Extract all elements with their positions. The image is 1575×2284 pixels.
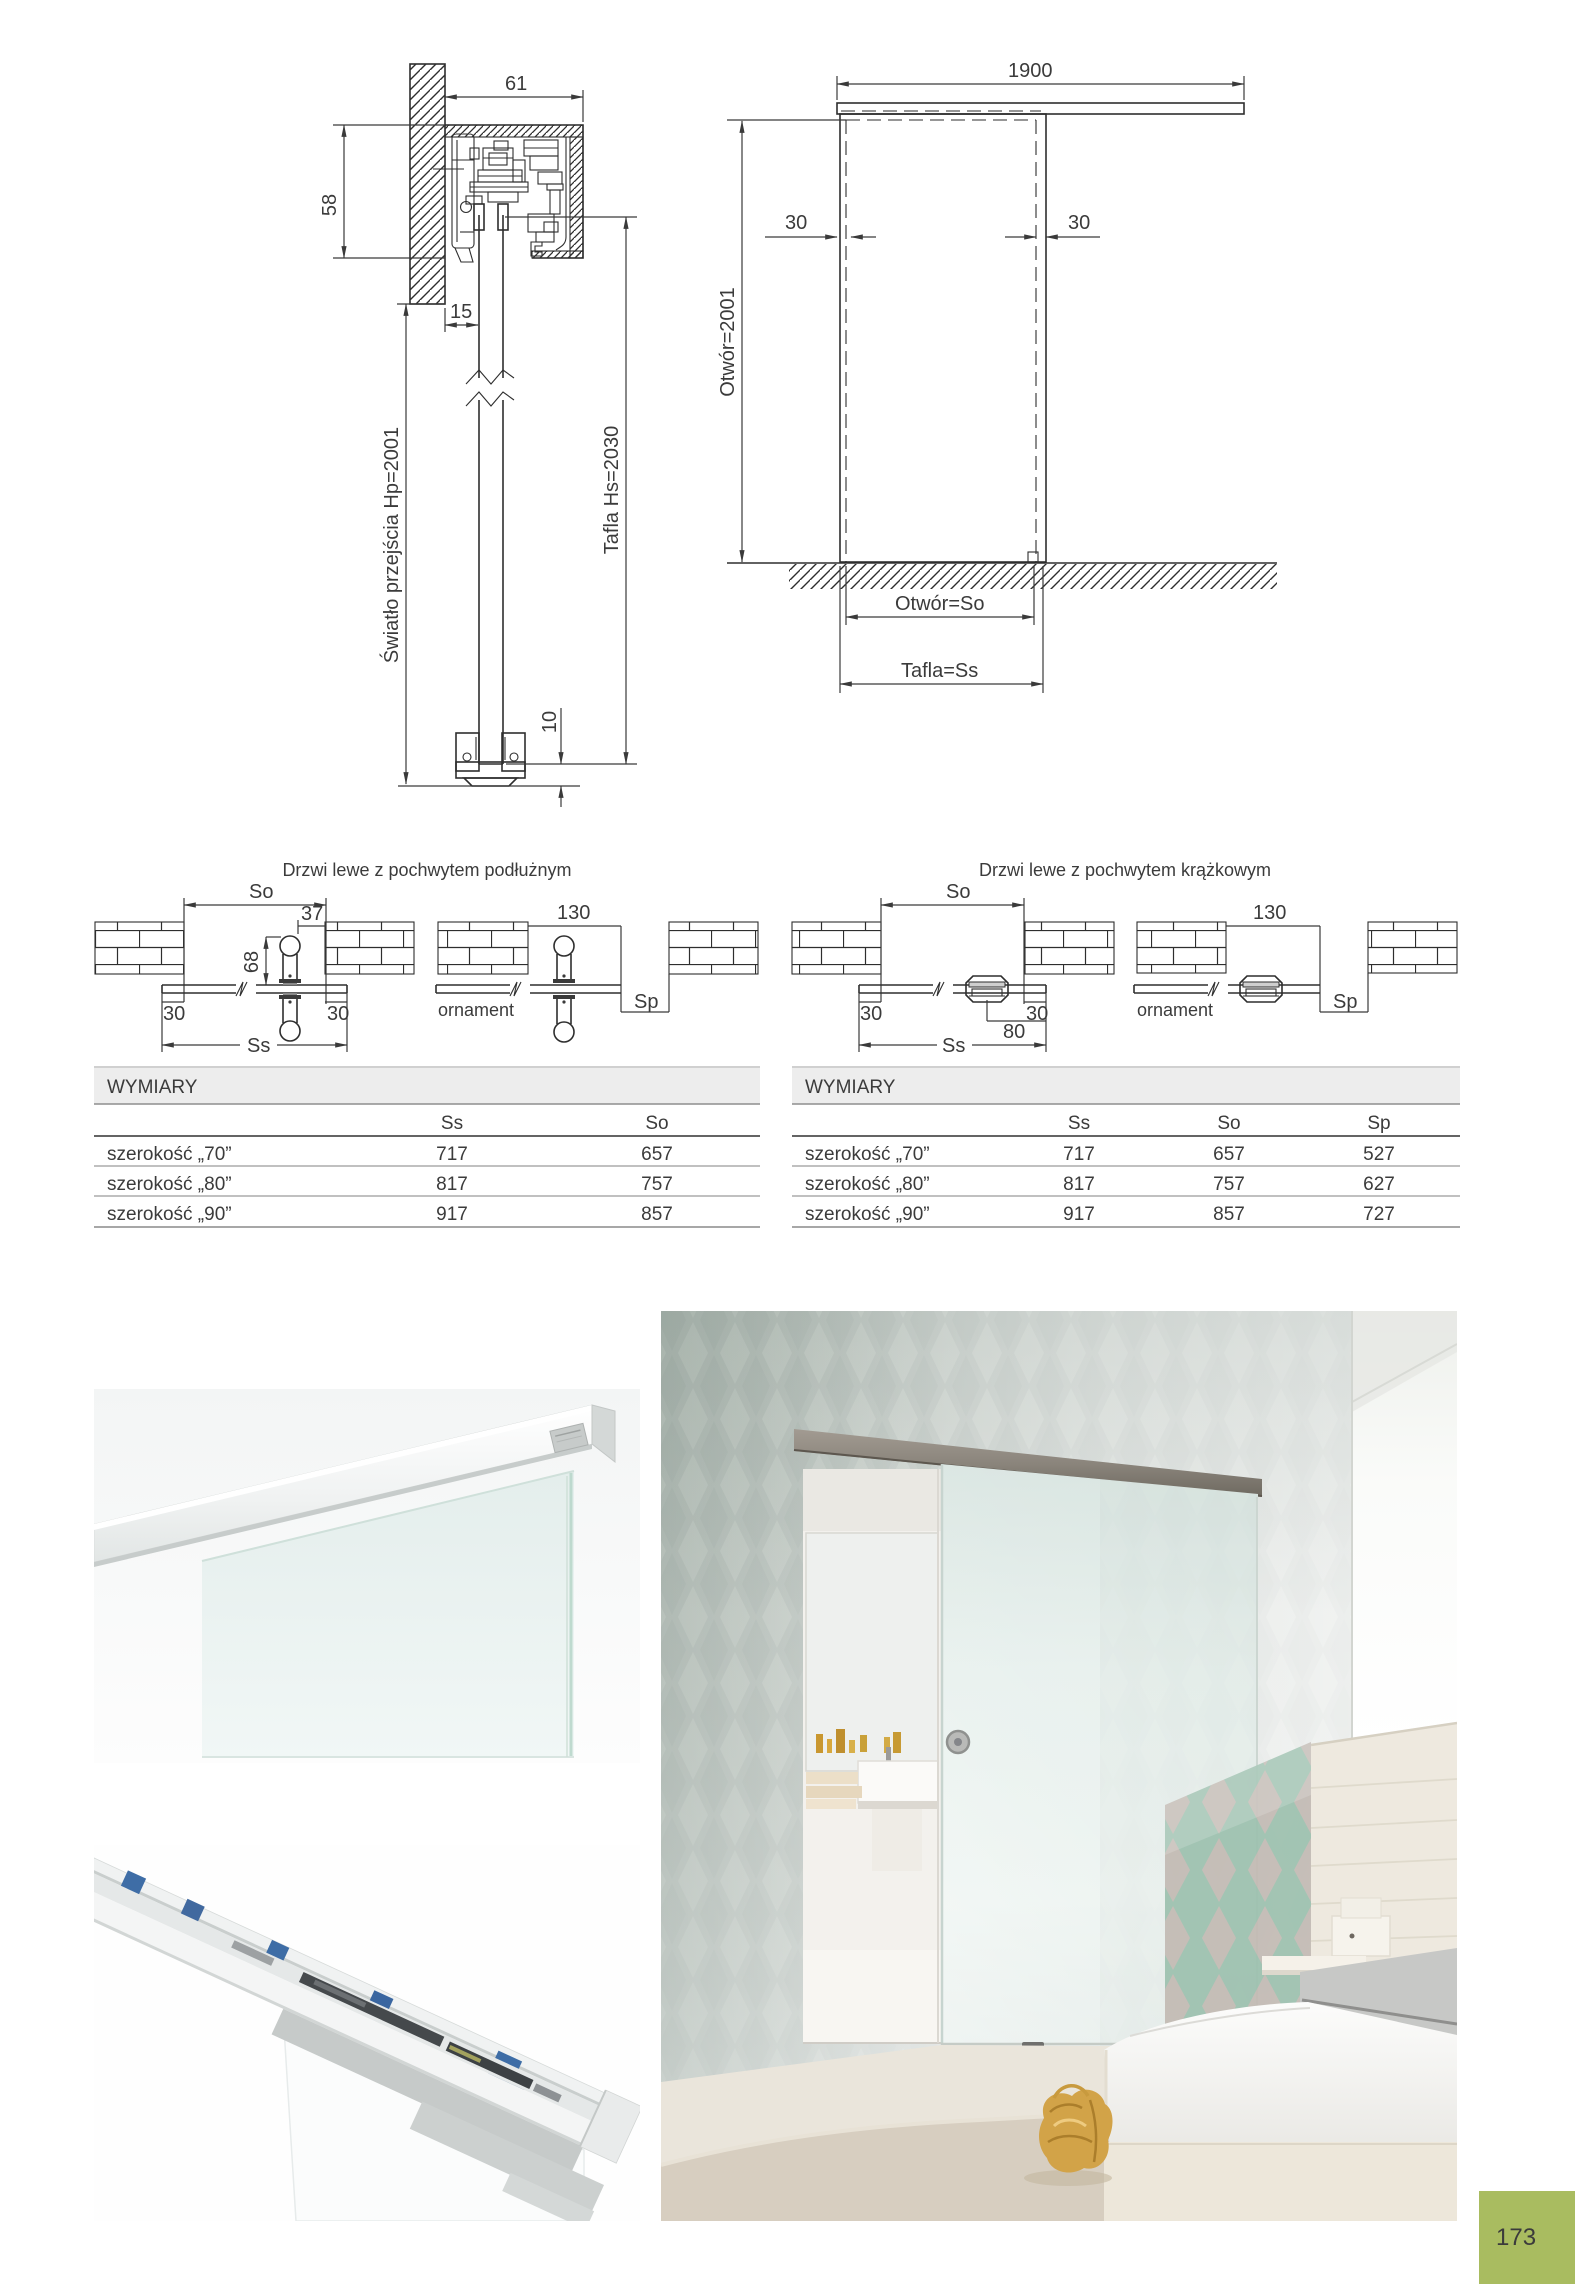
svg-text:857: 857 xyxy=(641,1204,673,1225)
svg-text:30: 30 xyxy=(1068,212,1090,234)
svg-text:527: 527 xyxy=(1363,1144,1395,1165)
svg-text:WYMIARY: WYMIARY xyxy=(805,1077,896,1098)
svg-text:Sp: Sp xyxy=(1367,1113,1390,1134)
svg-text:szerokość „90”: szerokość „90” xyxy=(805,1204,930,1225)
svg-text:Ss: Ss xyxy=(247,1035,270,1057)
svg-text:917: 917 xyxy=(436,1204,468,1225)
svg-text:szerokość „80”: szerokość „80” xyxy=(107,1174,232,1195)
svg-text:657: 657 xyxy=(1213,1144,1245,1165)
svg-text:WYMIARY: WYMIARY xyxy=(107,1077,198,1098)
svg-text:30: 30 xyxy=(327,1003,349,1025)
svg-text:30: 30 xyxy=(1026,1003,1048,1025)
svg-text:757: 757 xyxy=(641,1174,673,1195)
svg-text:Otwór=So: Otwór=So xyxy=(895,593,984,615)
svg-text:817: 817 xyxy=(436,1174,468,1195)
svg-text:80: 80 xyxy=(1003,1021,1025,1043)
svg-text:727: 727 xyxy=(1363,1204,1395,1225)
svg-text:ornament: ornament xyxy=(1137,1000,1213,1020)
svg-text:Tafla=Ss: Tafla=Ss xyxy=(901,660,978,682)
svg-text:857: 857 xyxy=(1213,1204,1245,1225)
svg-text:30: 30 xyxy=(785,212,807,234)
svg-text:So: So xyxy=(1217,1113,1240,1134)
svg-text:173: 173 xyxy=(1496,2224,1536,2251)
svg-text:130: 130 xyxy=(1253,902,1286,924)
svg-text:717: 717 xyxy=(1063,1144,1095,1165)
svg-text:Światło przejścia Hp=2001: Światło przejścia Hp=2001 xyxy=(379,427,403,663)
svg-text:30: 30 xyxy=(163,1003,185,1025)
svg-text:Sp: Sp xyxy=(634,991,658,1013)
svg-text:10: 10 xyxy=(539,711,561,733)
svg-text:917: 917 xyxy=(1063,1204,1095,1225)
svg-text:So: So xyxy=(946,881,970,903)
svg-text:Otwór=2001: Otwór=2001 xyxy=(717,287,739,397)
svg-text:Ss: Ss xyxy=(942,1035,965,1057)
svg-text:ornament: ornament xyxy=(438,1000,514,1020)
svg-text:1900: 1900 xyxy=(1008,60,1053,82)
svg-text:Tafla Hs=2030: Tafla Hs=2030 xyxy=(601,426,623,554)
svg-text:627: 627 xyxy=(1363,1174,1395,1195)
svg-text:15: 15 xyxy=(450,301,472,323)
svg-text:130: 130 xyxy=(557,902,590,924)
svg-text:68: 68 xyxy=(241,951,263,973)
svg-text:szerokość „80”: szerokość „80” xyxy=(805,1174,930,1195)
svg-text:61: 61 xyxy=(505,73,527,95)
svg-text:Drzwi lewe z pochwytem podłużn: Drzwi lewe z pochwytem podłużnym xyxy=(282,860,571,880)
svg-text:717: 717 xyxy=(436,1144,468,1165)
svg-text:657: 657 xyxy=(641,1144,673,1165)
svg-text:58: 58 xyxy=(319,194,341,216)
svg-text:szerokość „90”: szerokość „90” xyxy=(107,1204,232,1225)
svg-text:Sp: Sp xyxy=(1333,991,1357,1013)
svg-text:37: 37 xyxy=(301,903,323,925)
svg-text:Drzwi lewe z pochwytem krążkow: Drzwi lewe z pochwytem krążkowym xyxy=(979,860,1271,880)
svg-text:Ss: Ss xyxy=(1068,1113,1090,1134)
svg-text:30: 30 xyxy=(860,1003,882,1025)
svg-text:szerokość „70”: szerokość „70” xyxy=(805,1144,930,1165)
svg-text:szerokość „70”: szerokość „70” xyxy=(107,1144,232,1165)
svg-text:Ss: Ss xyxy=(441,1113,463,1134)
svg-text:So: So xyxy=(645,1113,668,1134)
svg-text:817: 817 xyxy=(1063,1174,1095,1195)
svg-text:757: 757 xyxy=(1213,1174,1245,1195)
svg-text:So: So xyxy=(249,881,273,903)
